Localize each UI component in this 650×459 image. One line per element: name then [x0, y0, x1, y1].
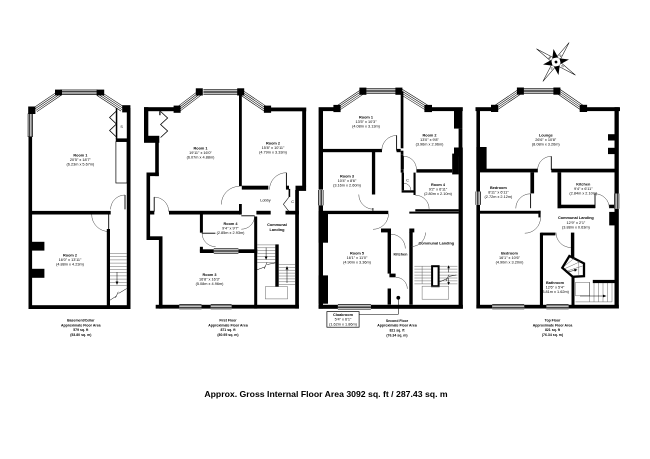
- svg-text:First Floor: First Floor: [219, 319, 237, 323]
- svg-text:(1.62m x 1.86m): (1.62m x 1.86m): [329, 322, 357, 327]
- svg-text:Approximate Floor Area: Approximate Floor Area: [61, 323, 102, 327]
- svg-text:Landing: Landing: [270, 227, 286, 232]
- svg-text:(8.08m x 3.26m): (8.08m x 3.26m): [532, 142, 560, 147]
- svg-text:Top Floor: Top Floor: [545, 319, 561, 323]
- svg-text:C: C: [291, 199, 294, 204]
- svg-text:(2.84m x 2.10m): (2.84m x 2.10m): [569, 191, 597, 196]
- svg-text:871 sq. ft: 871 sq. ft: [220, 328, 236, 332]
- svg-text:(3.96m x 2.96m): (3.96m x 2.96m): [416, 142, 444, 147]
- svg-text:(3.81m x 1.62m): (3.81m x 1.62m): [541, 289, 569, 294]
- svg-text:Basement/Cellar: Basement/Cellar: [67, 319, 95, 323]
- svg-text:(4.79m x 3.33m): (4.79m x 3.33m): [259, 150, 287, 155]
- svg-text:(2.80m x 2.10m): (2.80m x 2.10m): [424, 191, 452, 196]
- svg-text:Kitchen: Kitchen: [394, 252, 409, 257]
- svg-text:(80.95 sq. m): (80.95 sq. m): [217, 333, 239, 337]
- svg-text:(2.72m x 2.12m): (2.72m x 2.12m): [485, 194, 513, 199]
- svg-text:(5.08m x 4.96m): (5.08m x 4.96m): [196, 281, 224, 286]
- svg-text:821 sq. ft: 821 sq. ft: [389, 329, 405, 333]
- svg-text:(76.34 sq. m): (76.34 sq. m): [542, 333, 564, 337]
- svg-text:Approximate Floor Area: Approximate Floor Area: [533, 323, 574, 327]
- svg-text:Approximate Floor Area: Approximate Floor Area: [208, 323, 249, 327]
- svg-text:(76.34 sq. m): (76.34 sq. m): [386, 333, 408, 337]
- svg-text:(4.08m x 3.13m): (4.08m x 3.13m): [352, 124, 380, 129]
- svg-text:Approximate Floor Area: Approximate Floor Area: [377, 324, 418, 328]
- svg-text:821 sq. ft: 821 sq. ft: [545, 328, 561, 332]
- svg-text:Second Floor: Second Floor: [386, 319, 409, 323]
- svg-text:(6.23m x 5.67m): (6.23m x 5.67m): [67, 162, 95, 167]
- svg-text:(3.88m x 0.63m): (3.88m x 0.63m): [562, 225, 590, 230]
- svg-text:(3.16m x 2.60m): (3.16m x 2.60m): [333, 183, 361, 188]
- svg-text:(4.90m x 3.20m): (4.90m x 3.20m): [496, 259, 524, 264]
- svg-text:(4.90m x 3.36m): (4.90m x 3.36m): [343, 260, 371, 265]
- svg-text:(2.85m x 2.93m): (2.85m x 2.93m): [217, 230, 245, 235]
- svg-text:Lobby: Lobby: [260, 198, 270, 203]
- svg-text:(53.80 sq. m): (53.80 sq. m): [70, 333, 92, 337]
- svg-text:(4.88m x 4.23m): (4.88m x 4.23m): [56, 261, 84, 266]
- svg-text:Approx. Gross Internal Floor A: Approx. Gross Internal Floor Area 3092 s…: [204, 389, 447, 399]
- svg-text:S: S: [120, 124, 123, 129]
- svg-text:C: C: [406, 178, 409, 183]
- svg-text:(6.07m x 4.88m): (6.07m x 4.88m): [187, 155, 215, 160]
- svg-text:579 sq. ft: 579 sq. ft: [73, 328, 89, 332]
- svg-text:Communal Landing: Communal Landing: [418, 241, 454, 246]
